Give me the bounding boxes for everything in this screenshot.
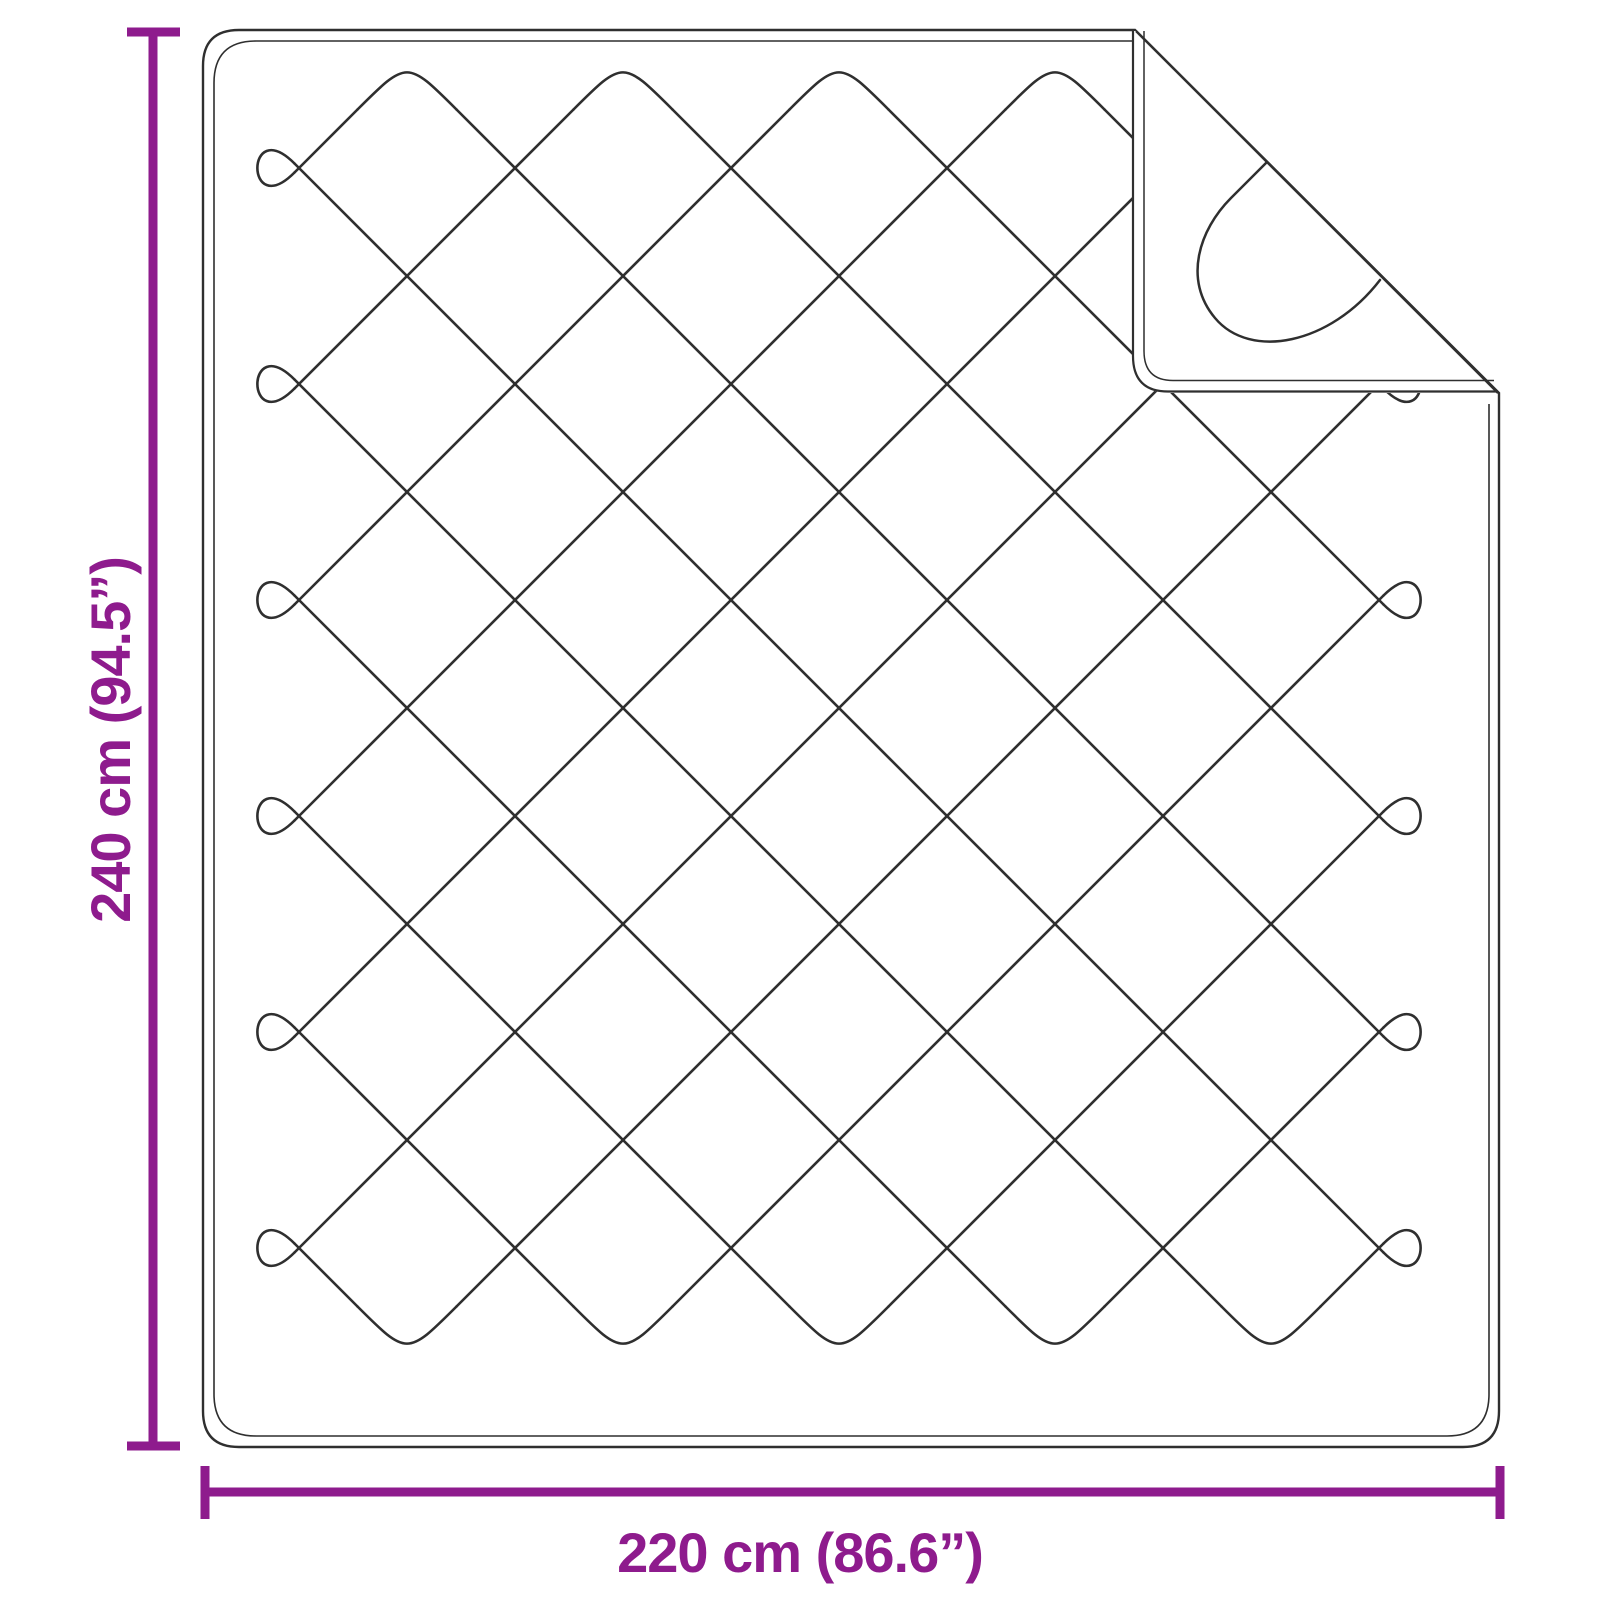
quilt-stitch (1384, 150, 1421, 186)
quilt-stitch (358, 1307, 457, 1344)
quilt-stitch (294, 1027, 573, 1306)
quilt-stitch (672, 595, 1383, 1306)
quilt-stitch (257, 582, 294, 618)
quilt-stitch (257, 150, 294, 186)
quilt-stitch (1320, 1243, 1383, 1306)
quilt-stitch (1384, 1014, 1421, 1050)
quilt-stitch (1006, 72, 1105, 109)
quilt-stitch (257, 366, 294, 402)
width-dimension-label: 220 cm (86.6”) (617, 1521, 983, 1584)
diagram-canvas: 240 cm (94.5”) 220 cm (86.6”) (0, 0, 1600, 1600)
quilt-stitch (257, 1230, 294, 1266)
quilt-stitch (888, 811, 1383, 1306)
blanket-illustration (203, 30, 1499, 1447)
quilt-stitch (790, 72, 889, 109)
quilt-stitch (1384, 798, 1421, 834)
quilt-stitch (294, 811, 789, 1306)
width-dimension: 220 cm (86.6”) (205, 1466, 1500, 1584)
quilt-stitch (294, 109, 789, 604)
quilt-stitch (358, 72, 457, 109)
quilt-stitch (574, 72, 673, 109)
quilt-stitch (257, 798, 294, 834)
quilt-stitch (257, 1014, 294, 1050)
height-dimension: 240 cm (94.5”) (79, 32, 180, 1446)
quilt-stitch (574, 1307, 673, 1344)
quilt-stitch (1320, 109, 1383, 172)
quilt-stitch (1384, 1230, 1421, 1266)
quilt-stitch (1006, 1307, 1105, 1344)
height-dimension-label: 240 cm (94.5”) (79, 557, 142, 923)
folded-corner (1133, 31, 1498, 393)
quilt-stitch (294, 109, 573, 388)
quilt-stitch (1384, 582, 1421, 618)
quilt-stitch (1104, 1027, 1383, 1306)
quilt-stitch (790, 1307, 889, 1344)
quilt-stitch (294, 109, 357, 172)
blanket-dimension-diagram: 240 cm (94.5”) 220 cm (86.6”) (0, 0, 1600, 1600)
quilt-stitch (294, 595, 1005, 1306)
quilt-stitch (1222, 1307, 1321, 1344)
quilt-stitch (1222, 72, 1321, 109)
quilt-stitch (294, 109, 1005, 820)
quilt-stitch (294, 1243, 357, 1306)
